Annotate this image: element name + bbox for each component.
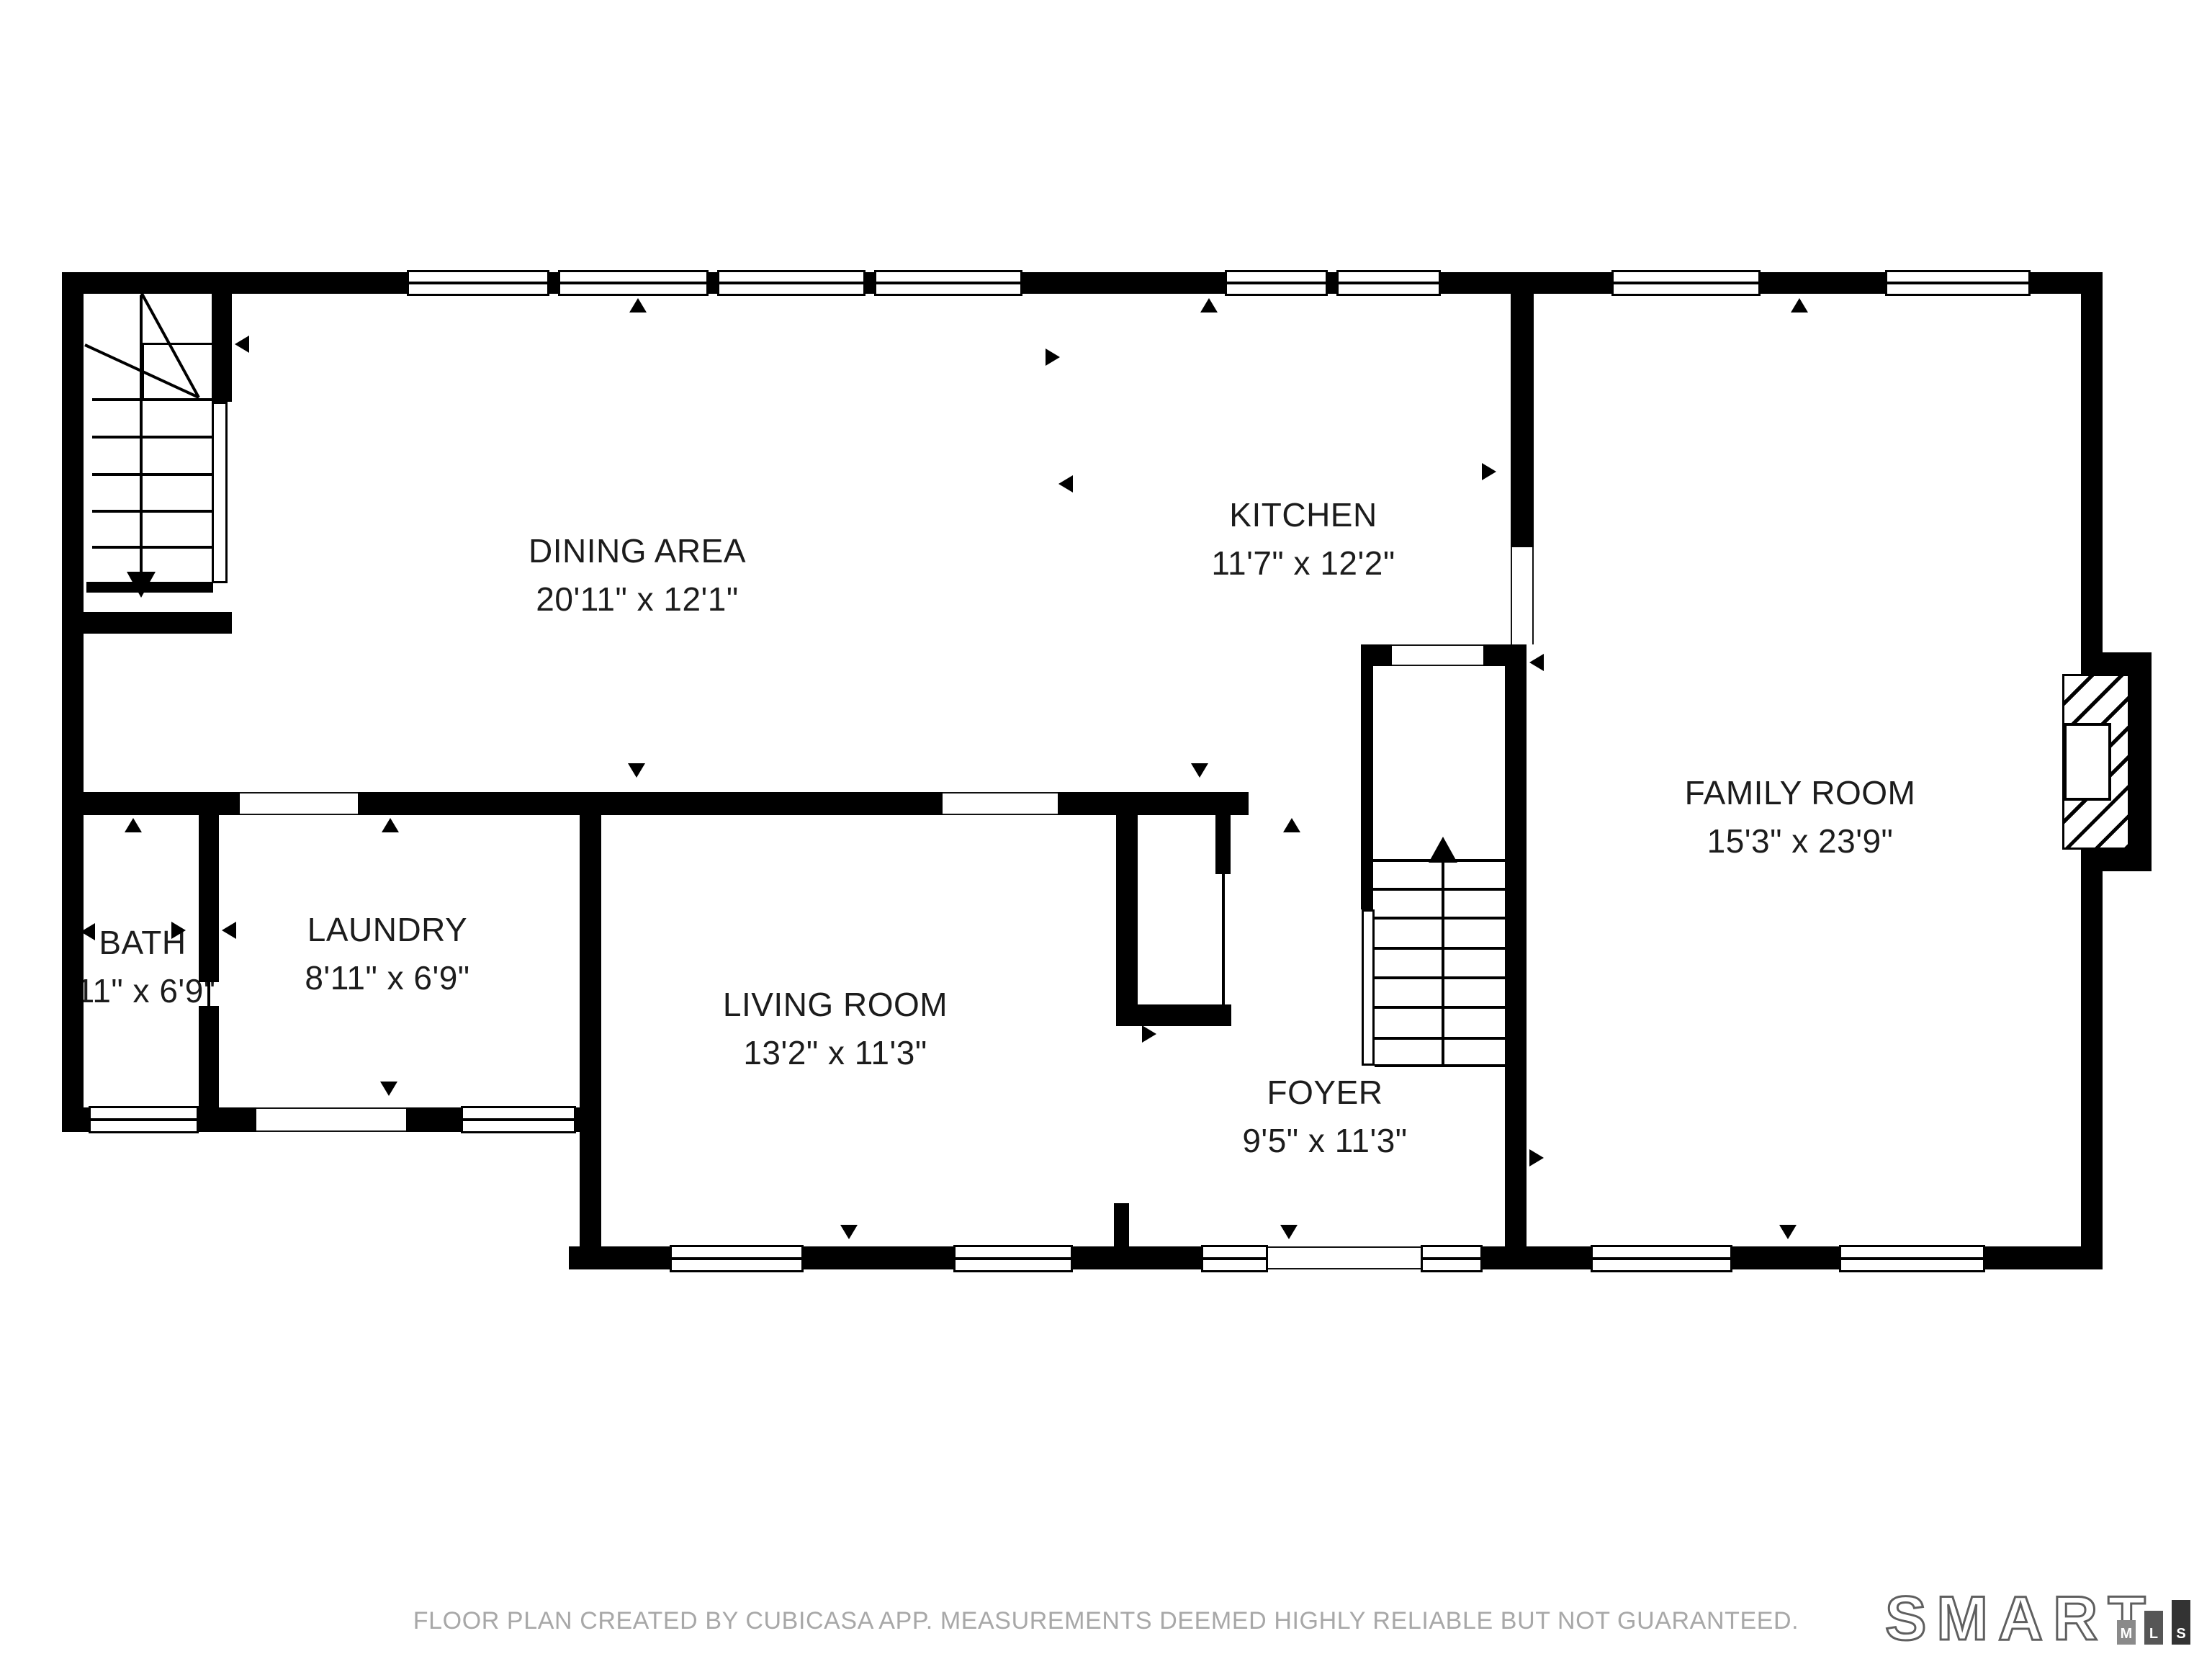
wall-segment bbox=[1138, 1004, 1231, 1026]
door-opening bbox=[240, 792, 358, 815]
window bbox=[1421, 1245, 1483, 1272]
door-swing-arrow bbox=[1529, 654, 1544, 671]
floor-plan: DINING AREA 20'11" x 12'1" KITCHEN 11'7"… bbox=[0, 0, 2212, 1659]
wall-segment bbox=[199, 1107, 256, 1132]
stair-tread bbox=[1375, 1064, 1505, 1067]
disclaimer-text: FLOOR PLAN CREATED BY CUBICASA APP. MEAS… bbox=[0, 1607, 2212, 1635]
wall-segment bbox=[1483, 1246, 1591, 1269]
stair-line bbox=[207, 982, 210, 1008]
logo-bar-l: L bbox=[2144, 1611, 2163, 1645]
window bbox=[670, 1245, 804, 1272]
door-swing-arrow bbox=[222, 922, 236, 939]
stair-tread bbox=[1375, 1037, 1505, 1040]
wall-segment bbox=[199, 1006, 219, 1107]
window bbox=[1839, 1245, 1985, 1272]
door-swing-arrow bbox=[1280, 1225, 1298, 1239]
door-opening bbox=[943, 792, 1058, 815]
stair-tread bbox=[1373, 976, 1505, 979]
door-swing-arrow bbox=[1046, 349, 1060, 366]
stair-down-arrow bbox=[127, 572, 156, 598]
door-swing-arrow bbox=[235, 336, 249, 353]
wall-segment bbox=[569, 1246, 670, 1269]
wall-segment bbox=[1116, 792, 1138, 1026]
smartmls-bars: M L S bbox=[2117, 1600, 2190, 1645]
window bbox=[1201, 1245, 1268, 1272]
stair-tread bbox=[1373, 888, 1505, 891]
wall-segment bbox=[1361, 644, 1392, 666]
window bbox=[461, 1106, 576, 1133]
stair-line bbox=[1222, 874, 1225, 1004]
wall-segment bbox=[580, 792, 601, 1269]
wall-segment bbox=[62, 1107, 91, 1132]
door-swing-arrow bbox=[382, 818, 399, 832]
door-swing-arrow bbox=[1191, 763, 1208, 778]
door-swing-arrow bbox=[840, 1225, 858, 1239]
stair-tread bbox=[1373, 1006, 1505, 1009]
stair-direction-line bbox=[1442, 863, 1444, 1064]
wall-segment bbox=[358, 792, 943, 815]
door-opening bbox=[1511, 547, 1534, 644]
stair-tread bbox=[1373, 917, 1505, 920]
logo-bar-m: M bbox=[2117, 1620, 2136, 1645]
stair-direction-line bbox=[140, 295, 143, 572]
wall-segment bbox=[1732, 1246, 1839, 1269]
door-swing-arrow bbox=[628, 763, 645, 778]
door-swing-arrow bbox=[1142, 1025, 1156, 1043]
door-swing-arrow bbox=[629, 298, 647, 313]
door-swing-arrow bbox=[1791, 298, 1808, 313]
wall-segment bbox=[1361, 666, 1373, 909]
door-opening bbox=[1392, 644, 1483, 666]
wall-segment bbox=[1114, 1203, 1129, 1246]
stair-up-arrow bbox=[1429, 837, 1457, 863]
door-swing-arrow bbox=[1200, 298, 1218, 313]
wall-segment bbox=[1511, 294, 1534, 547]
wall-segment bbox=[1985, 1246, 2103, 1269]
wall-segment bbox=[62, 792, 240, 815]
logo-bar-s: S bbox=[2172, 1600, 2190, 1645]
door-swing-arrow bbox=[81, 923, 95, 940]
stair-winder-lines bbox=[0, 0, 2212, 1659]
wall-segment bbox=[1215, 792, 1231, 874]
wall-segment bbox=[1073, 1246, 1201, 1269]
door-swing-arrow bbox=[1283, 818, 1300, 832]
door-swing-arrow bbox=[1058, 475, 1073, 493]
stair-railing bbox=[1362, 909, 1375, 1066]
door-swing-arrow bbox=[380, 1082, 397, 1096]
wall-segment bbox=[804, 1246, 953, 1269]
smartmls-logo: SMART M L S bbox=[1885, 1587, 2202, 1647]
door-opening bbox=[256, 1107, 406, 1132]
door-swing-arrow bbox=[1529, 1149, 1544, 1166]
door-swing-arrow bbox=[171, 922, 186, 939]
wall-segment bbox=[2081, 848, 2152, 871]
stair-tread bbox=[1373, 947, 1505, 950]
window bbox=[953, 1245, 1073, 1272]
firebox bbox=[2064, 723, 2111, 801]
door-swing-arrow bbox=[1482, 463, 1496, 480]
wall-segment bbox=[1505, 644, 1527, 1246]
window bbox=[89, 1106, 199, 1133]
wall-segment bbox=[199, 815, 219, 982]
door-swing-arrow bbox=[125, 818, 142, 832]
window bbox=[1591, 1245, 1732, 1272]
wall-segment bbox=[2128, 652, 2152, 871]
smartmls-wordmark: SMART bbox=[1885, 1590, 2156, 1647]
wall-segment bbox=[406, 1107, 461, 1132]
door-swing-arrow bbox=[1779, 1225, 1797, 1239]
door-opening bbox=[1268, 1246, 1421, 1269]
